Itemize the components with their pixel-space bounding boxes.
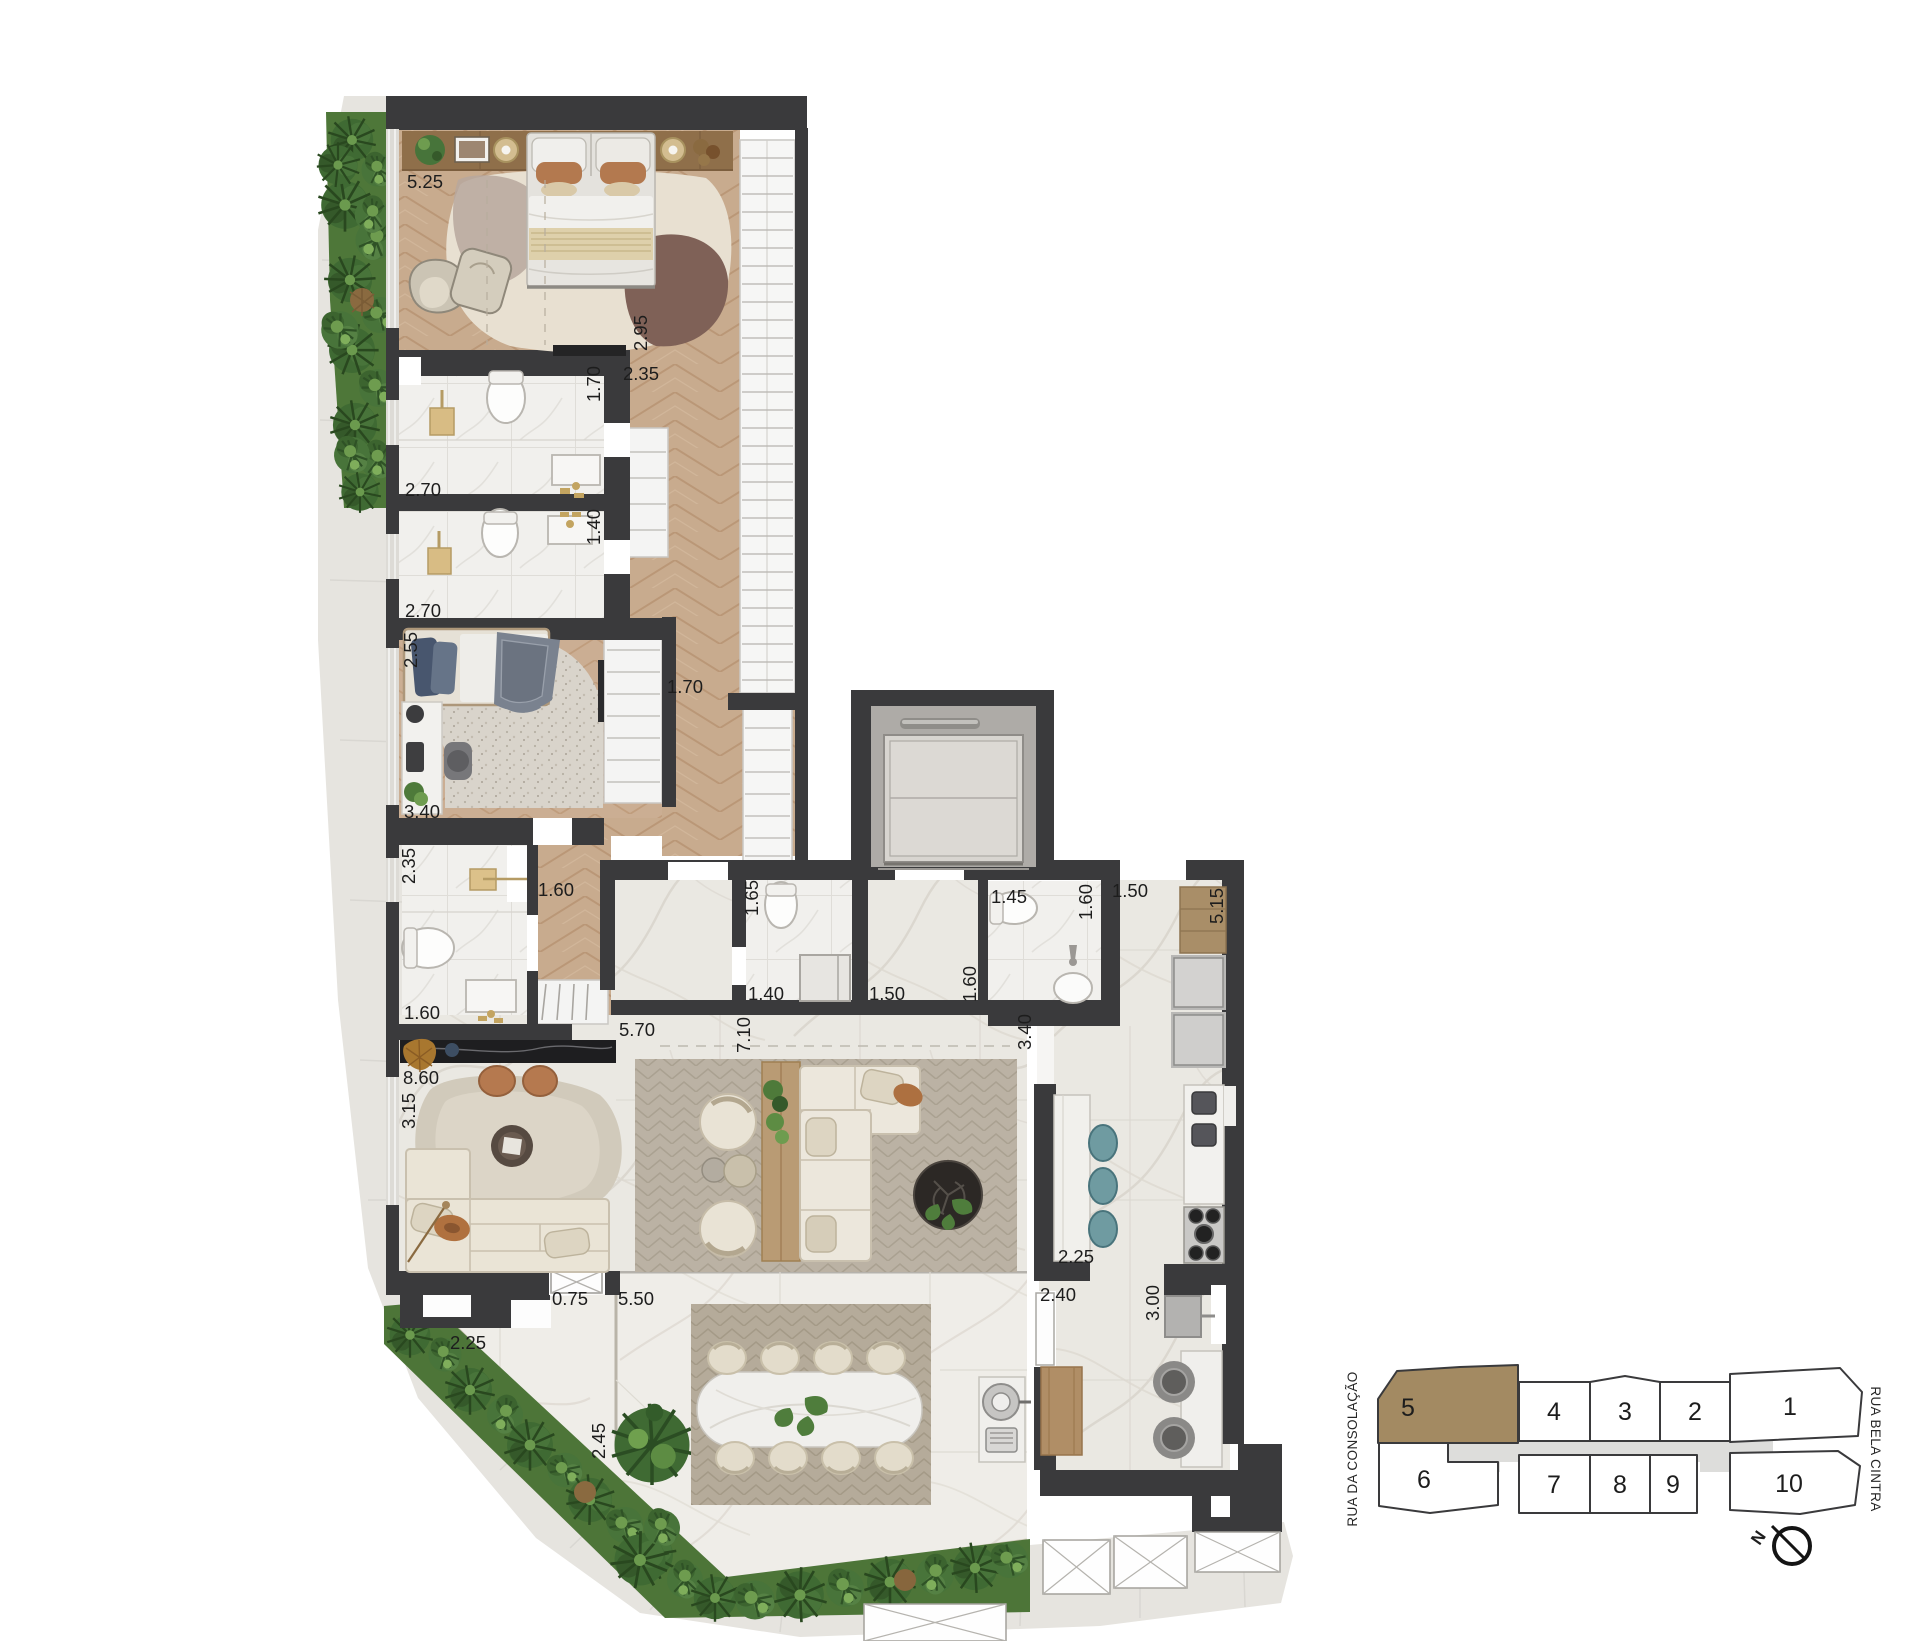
svg-text:7: 7 [1547,1471,1561,1499]
svg-text:1.40: 1.40 [748,983,784,1004]
svg-text:3.15: 3.15 [398,1093,419,1129]
svg-text:RUA BELA CINTRA: RUA BELA CINTRA [1868,1386,1883,1511]
svg-text:2.35: 2.35 [398,848,419,884]
svg-text:2.95: 2.95 [630,315,651,351]
svg-text:3.00: 3.00 [1142,1285,1163,1321]
svg-text:0.75: 0.75 [552,1288,588,1309]
svg-text:1.60: 1.60 [538,879,574,900]
svg-text:RUA DA CONSOLAÇÃO: RUA DA CONSOLAÇÃO [1345,1371,1360,1526]
svg-text:1.50: 1.50 [1112,880,1148,901]
svg-text:2.35: 2.35 [623,363,659,384]
svg-text:N: N [1747,1527,1770,1548]
svg-text:3.40: 3.40 [404,801,440,822]
svg-text:5: 5 [1401,1394,1415,1422]
svg-text:2.70: 2.70 [405,479,441,500]
svg-text:5.25: 5.25 [407,171,443,192]
svg-text:3: 3 [1618,1398,1632,1426]
svg-text:1.50: 1.50 [869,983,905,1004]
svg-text:2: 2 [1688,1398,1702,1426]
svg-text:1.40: 1.40 [583,509,604,545]
svg-text:8: 8 [1613,1471,1627,1499]
svg-text:5.50: 5.50 [618,1288,654,1309]
svg-text:7.10: 7.10 [733,1017,754,1053]
svg-text:3.40: 3.40 [1014,1014,1035,1050]
svg-text:2.45: 2.45 [588,1423,609,1459]
svg-text:1.45: 1.45 [991,886,1027,907]
svg-text:6: 6 [1417,1466,1431,1494]
svg-text:4: 4 [1547,1398,1561,1426]
svg-text:2.40: 2.40 [1040,1284,1076,1305]
svg-text:2.25: 2.25 [450,1332,486,1353]
svg-text:1.70: 1.70 [667,676,703,697]
svg-text:10: 10 [1775,1470,1803,1498]
svg-text:5.15: 5.15 [1206,888,1227,924]
svg-text:1.60: 1.60 [1075,884,1096,920]
svg-text:2.70: 2.70 [405,600,441,621]
svg-text:9: 9 [1666,1471,1680,1499]
svg-text:1.60: 1.60 [404,1002,440,1023]
svg-text:1.65: 1.65 [741,880,762,916]
svg-text:1: 1 [1783,1393,1797,1421]
svg-text:1.70: 1.70 [583,366,604,402]
svg-text:5.70: 5.70 [619,1019,655,1040]
svg-text:1.60: 1.60 [959,966,980,1002]
svg-text:2.25: 2.25 [1058,1246,1094,1267]
svg-text:8.60: 8.60 [403,1067,439,1088]
svg-text:2.55: 2.55 [400,632,421,668]
